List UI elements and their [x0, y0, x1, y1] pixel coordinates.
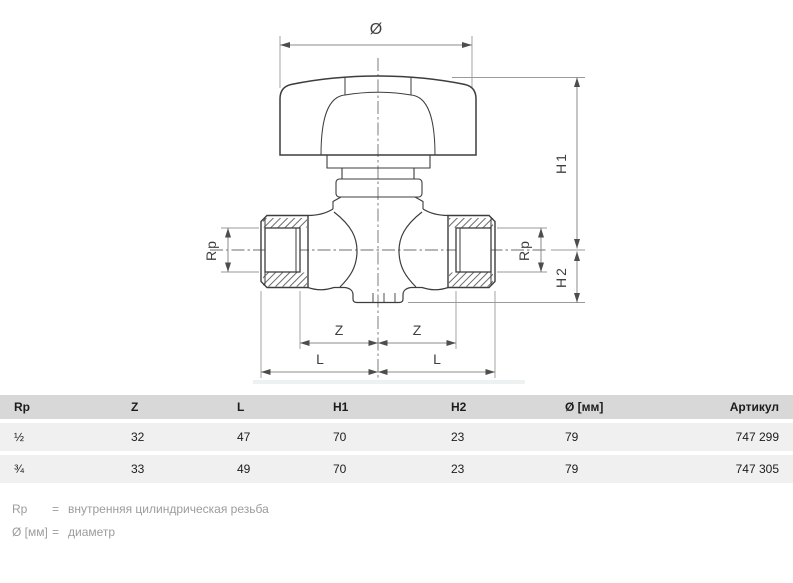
cell-z: 32 [131, 430, 237, 444]
column-header-diameter: Ø [мм] [565, 400, 685, 414]
l-left-dimension-label: L [316, 351, 324, 367]
valve-technical-drawing: Ø H1 H2 Rp Rp Z Z L L [0, 0, 793, 392]
legend-text: диаметр [68, 521, 793, 544]
cell-h1: 70 [333, 430, 451, 444]
legend-text: внутренняя цилиндрическая резьба [68, 498, 793, 521]
z-right-dimension-label: Z [413, 322, 422, 338]
right-threaded-socket [448, 216, 495, 288]
cell-article: 747 305 [685, 462, 779, 476]
legend: Rp = внутренняя цилиндрическая резьба Ø … [12, 498, 793, 544]
dimension-arrows [225, 42, 580, 375]
cell-l: 49 [237, 462, 333, 476]
legend-equals: = [52, 521, 68, 544]
cell-h2: 23 [451, 430, 565, 444]
column-header-l: L [237, 400, 333, 414]
faint-guide-band [253, 380, 525, 384]
column-header-h2: H2 [451, 400, 565, 414]
cell-diameter: 79 [565, 462, 685, 476]
table-row: ½ 32 47 70 23 79 747 299 [0, 423, 793, 451]
column-header-h1: H1 [333, 400, 451, 414]
cell-l: 47 [237, 430, 333, 444]
cell-z: 33 [131, 462, 237, 476]
left-threaded-socket [261, 216, 308, 288]
cell-rp: ½ [14, 430, 131, 444]
column-header-rp: Rp [14, 400, 131, 414]
cell-diameter: 79 [565, 430, 685, 444]
legend-equals: = [52, 498, 68, 521]
legend-symbol: Rp [12, 498, 52, 521]
legend-symbol: Ø [мм] [12, 521, 52, 544]
column-header-z: Z [131, 400, 237, 414]
cell-h1: 70 [333, 462, 451, 476]
h2-dimension-label: H2 [553, 266, 569, 288]
z-left-dimension-label: Z [335, 322, 344, 338]
table-row: ¾ 33 49 70 23 79 747 305 [0, 455, 793, 483]
h1-dimension-label: H1 [553, 152, 569, 174]
catalog-page: Ø H1 H2 Rp Rp Z Z L L [0, 0, 793, 583]
valve-drawing-svg: Ø H1 H2 Rp Rp Z Z L L [0, 0, 793, 392]
column-header-article: Артикул [685, 400, 779, 414]
cell-h2: 23 [451, 462, 565, 476]
extension-lines [221, 36, 585, 378]
legend-item: Ø [мм] = диаметр [12, 521, 793, 544]
diameter-dimension-label: Ø [370, 21, 382, 38]
cell-article: 747 299 [685, 430, 779, 444]
cell-rp: ¾ [14, 462, 131, 476]
rp-right-dimension-label: Rp [516, 239, 532, 261]
table-header-row: Rp Z L H1 H2 Ø [мм] Артикул [0, 395, 793, 419]
rp-left-dimension-label: Rp [203, 239, 219, 261]
l-right-dimension-label: L [433, 351, 441, 367]
legend-item: Rp = внутренняя цилиндрическая резьба [12, 498, 793, 521]
spec-table: Rp Z L H1 H2 Ø [мм] Артикул ½ 32 47 70 2… [0, 395, 793, 483]
valve-stem [327, 155, 430, 209]
